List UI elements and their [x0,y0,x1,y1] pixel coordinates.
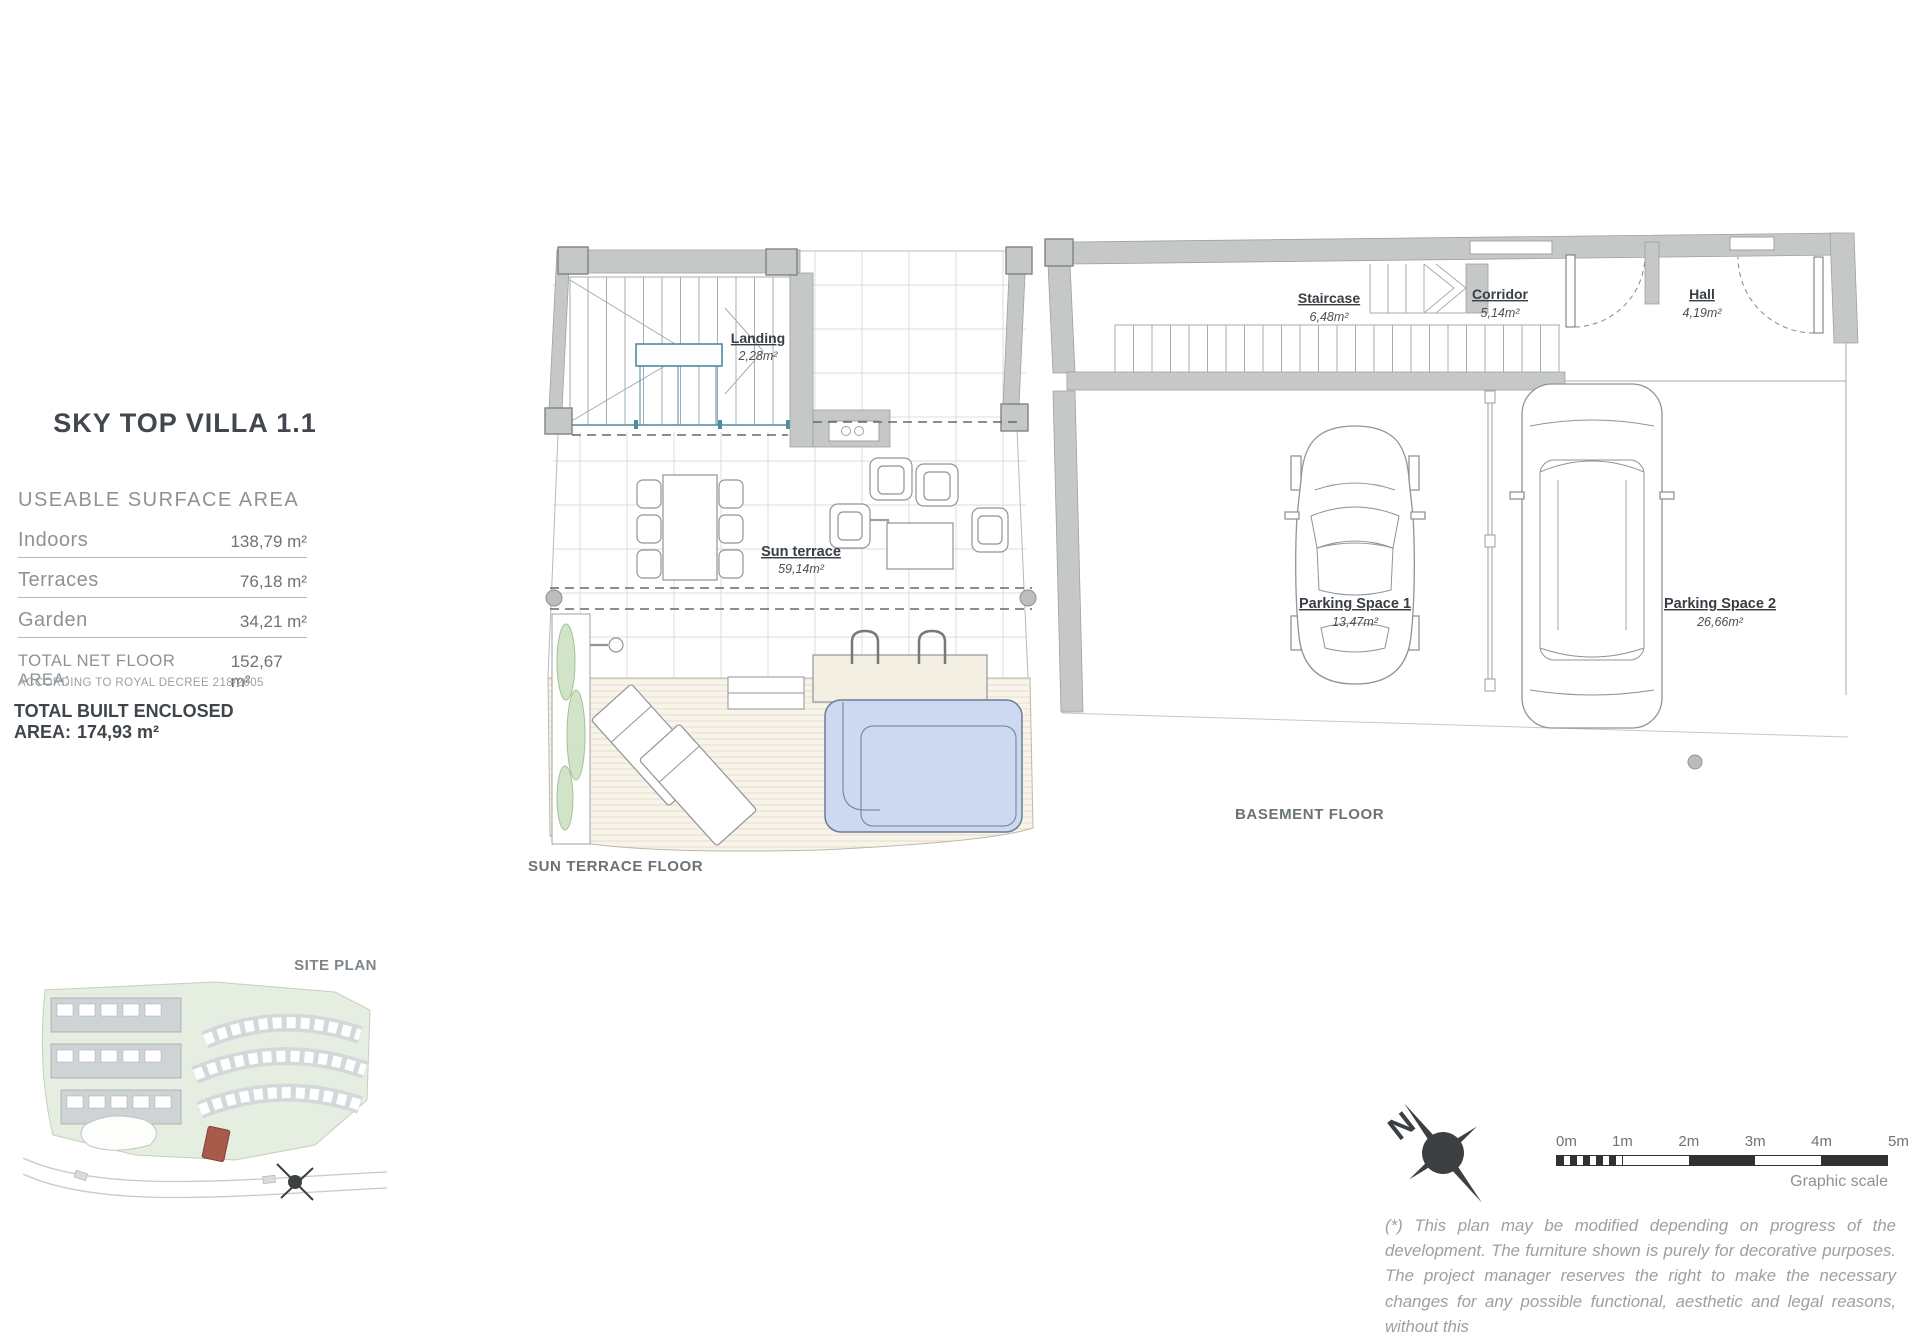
sun-terrace-caption: SUN TERRACE FLOOR [528,858,703,875]
site-plan: SITE PLAN [15,950,395,1240]
scale-segment [1821,1156,1887,1165]
north-arrow-icon: N [1378,1085,1508,1215]
pool-bar-counter [813,655,987,702]
table-row: Garden 34,21 m² [18,598,307,638]
site-plan-caption: SITE PLAN [294,957,377,974]
deck-bench [728,677,804,709]
scale-segment [1557,1156,1623,1165]
room-label-hall: Hall [1689,286,1715,302]
site-pond [81,1116,156,1150]
room-area-staircase: 6,48m² [1310,310,1350,324]
door-corridor-hall [1566,255,1645,327]
room-label-staircase: Staircase [1298,290,1360,306]
row-label: Terraces [18,569,99,592]
pergola-dashed-lines [550,422,1032,609]
surface-area-table: Indoors 138,79 m² Terraces 76,18 m² Gard… [18,518,307,638]
room-label-sun-terrace: Sun terrace [761,544,841,560]
row-value: 76,18 m² [240,572,307,592]
room-area-parking2: 26,66m² [1696,615,1744,629]
car-parking-1 [1285,426,1425,684]
corridor-stairs [1115,325,1560,372]
door-hall [1738,257,1823,333]
room-label-corridor: Corridor [1472,286,1529,302]
plunge-pool [825,700,1022,832]
site-north-arrow-icon [277,1164,313,1200]
surface-area-header: USEABLE SURFACE AREA [18,489,307,512]
basement-caption: BASEMENT FLOOR [1235,806,1384,823]
room-area-parking1: 13,47m² [1332,615,1379,629]
royal-decree-note: ACCORDING TO ROYAL DECREE 218/2005 [18,677,307,689]
car-parking-2 [1510,384,1674,728]
scale-segment [1689,1156,1755,1165]
page-title: SKY TOP VILLA 1.1 [50,408,320,439]
row-label: Garden [18,609,88,632]
scale-bar [1556,1155,1888,1166]
scale-tick: 2m [1678,1133,1699,1150]
graphic-scale-caption: Graphic scale [1556,1173,1888,1191]
parking-divider [1485,391,1495,691]
scale-segment [1623,1156,1689,1165]
scale-tick: 3m [1745,1133,1766,1150]
total-built-value: 174,93 m² [77,722,159,742]
room-area-corridor: 5,14m² [1481,306,1521,320]
room-label-landing: Landing [731,330,785,346]
outdoor-kitchen-counter [829,421,879,441]
scale-ticks: 0m 1m 2m 3m 4m 5m [1556,1133,1888,1151]
walls [1047,233,1858,712]
basement-staircase [1370,264,1466,313]
north-label: N [1381,1104,1421,1147]
wall-column [1045,239,1073,266]
room-area-hall: 4,19m² [1683,306,1723,320]
pergola-post [546,590,562,606]
disclaimer-text: (*) This plan may be modified depending … [1385,1213,1896,1339]
graphic-scale: 0m 1m 2m 3m 4m 5m Graphic scale [1556,1133,1888,1191]
room-area-sun-terrace: 59,14m² [778,562,825,576]
scale-tick: 0m [1556,1133,1577,1150]
sun-terrace-floor-plan: Landing 2,28m² Sun terrace 59,14m² [520,190,1060,890]
scale-tick: 4m [1811,1133,1832,1150]
total-built-area: TOTAL BUILT ENCLOSED AREA:174,93 m² [14,701,314,743]
scale-segment [1755,1156,1821,1165]
floor-plan-sheet: { "info_panel": { "title": "SKY TOP VILL… [0,0,1920,1280]
shower-icon [590,638,623,652]
driveway-edge [1062,713,1848,737]
table-row: Terraces 76,18 m² [18,558,307,598]
row-value: 34,21 m² [240,612,307,632]
planter [552,614,590,844]
basement-floor-plan: Staircase 6,48m² Corridor 5,14m² Hall 4,… [1030,195,1860,835]
room-label-parking2: Parking Space 2 [1664,596,1776,612]
structural-dot [1688,755,1702,769]
room-area-landing: 2,28m² [738,349,779,363]
lounge-set [830,458,1008,569]
table-row: Indoors 138,79 m² [18,518,307,558]
dining-set [637,475,743,580]
terrace-right-edge [1017,430,1028,678]
row-label: Indoors [18,529,88,552]
row-value: 138,79 m² [230,532,307,552]
room-label-parking1: Parking Space 1 [1299,596,1411,612]
scale-tick: 1m [1612,1133,1633,1150]
